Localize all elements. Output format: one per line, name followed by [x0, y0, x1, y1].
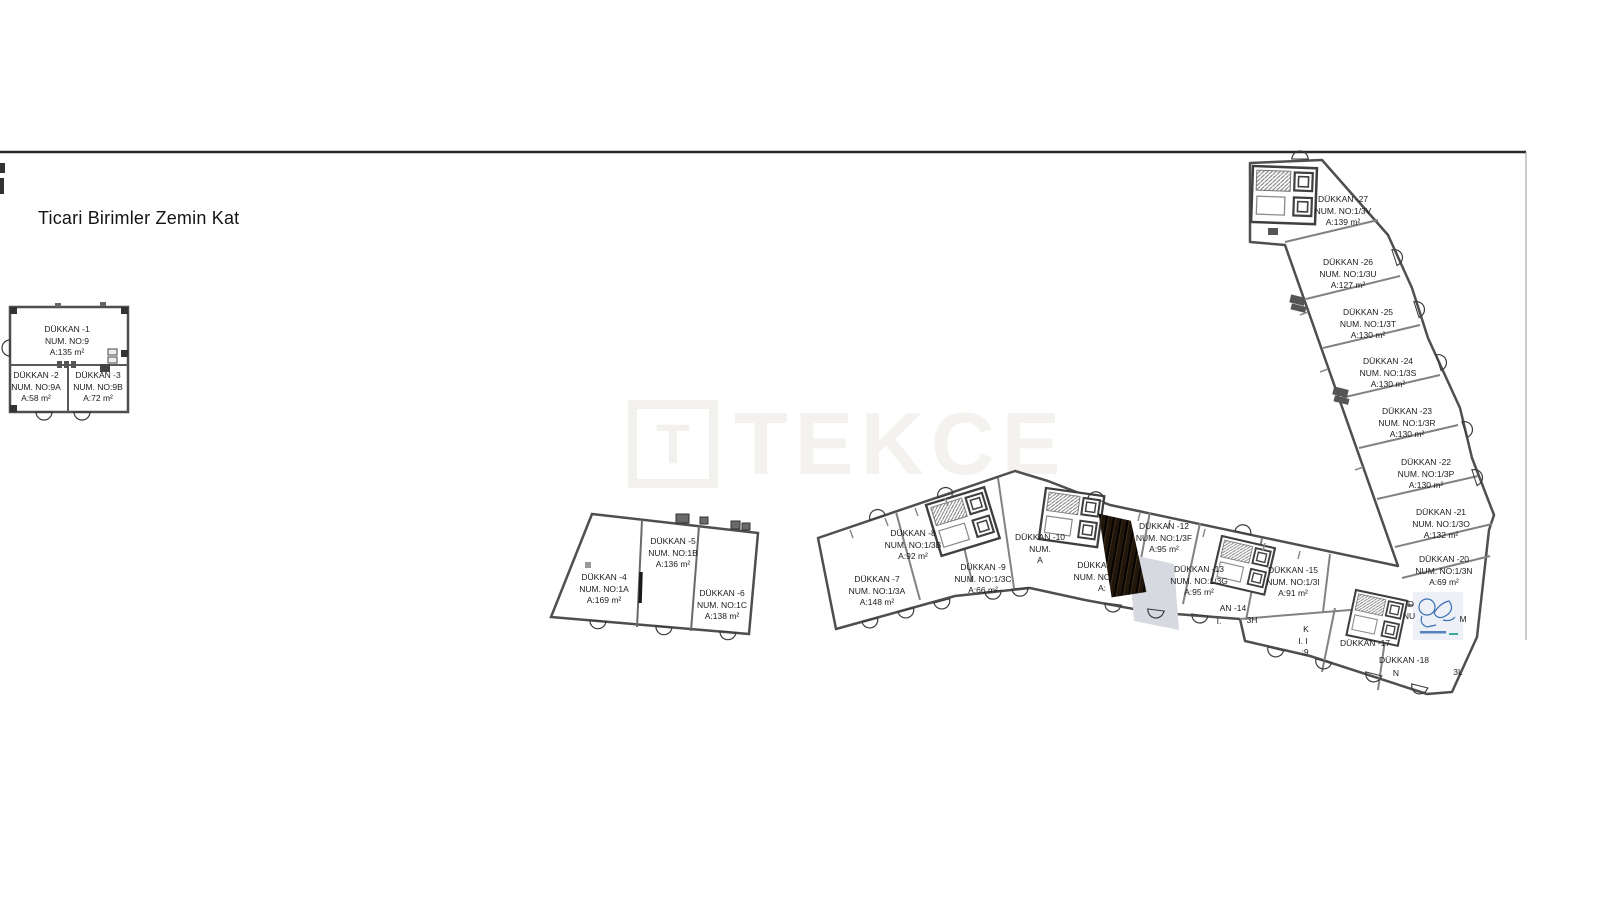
floor-plan-drawing — [0, 0, 1600, 900]
building-middle-block — [551, 514, 758, 640]
building-main — [818, 151, 1494, 696]
floor-plan-page: T TEKCE — [0, 0, 1600, 900]
architect-stamp-icon — [1413, 592, 1463, 640]
page-title: Ticari Birimler Zemin Kat — [38, 208, 239, 229]
building-left-block — [2, 302, 128, 420]
